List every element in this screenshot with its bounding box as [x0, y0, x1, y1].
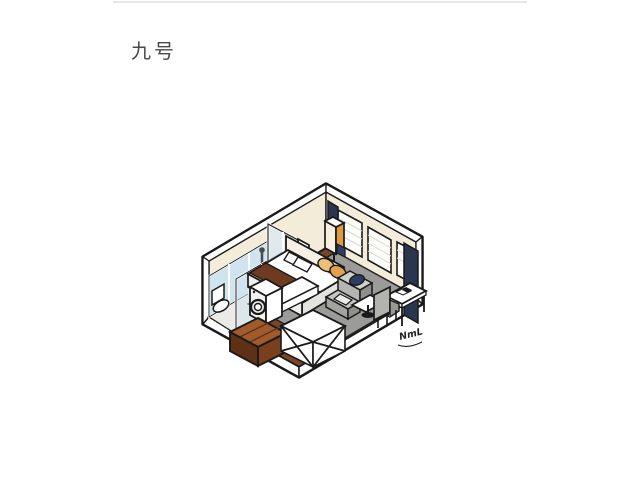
svg-text:NmL: NmL — [398, 326, 424, 342]
top-divider — [113, 1, 527, 3]
page: 九号 — [0, 0, 640, 480]
room-illustration: NmL — [194, 172, 440, 384]
page-title: 九号 — [131, 41, 177, 63]
artist-signature: NmL — [398, 326, 424, 346]
washing-machine — [250, 279, 282, 324]
